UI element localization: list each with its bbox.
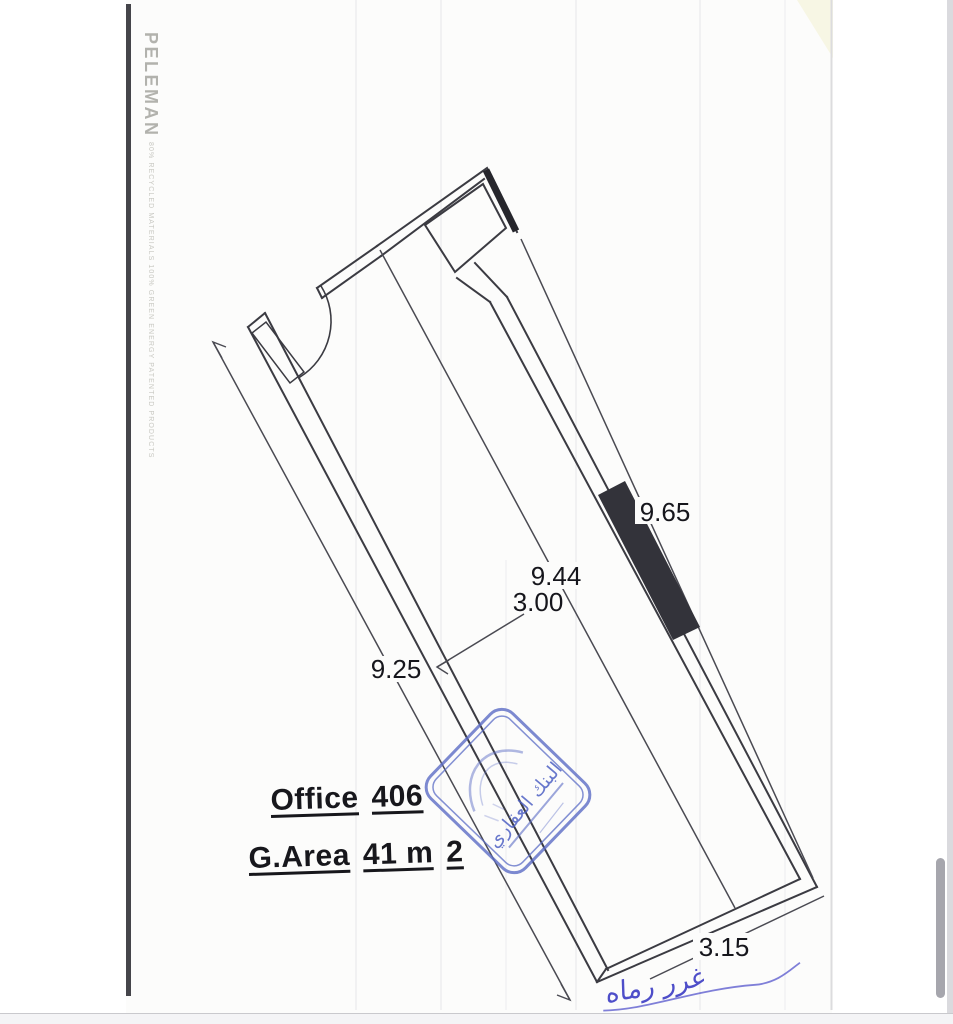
dim-label-right-wall: 9.65 bbox=[640, 497, 691, 527]
dim-label-left-wall: 9.25 bbox=[371, 654, 422, 684]
gross-area-label: G.Area41 m2 bbox=[248, 835, 464, 876]
paper-sheet bbox=[126, 0, 832, 1013]
scrollbar-thumb[interactable] bbox=[936, 858, 945, 998]
scanned-floorplan-viewer: 9.65 9.44 3.00 9.25 3.15 البنك العقاري غ… bbox=[0, 0, 953, 1024]
office-title-word: Office bbox=[270, 781, 359, 817]
area-value: 41 m bbox=[362, 836, 433, 871]
office-title: Office406 bbox=[270, 779, 424, 818]
dim-label-bottom: 3.15 bbox=[699, 932, 750, 962]
area-word: G.Area bbox=[248, 839, 350, 875]
dim-label-width: 3.00 bbox=[513, 587, 564, 617]
area-unit-exponent: 2 bbox=[446, 835, 464, 869]
binding-tagline-text: 80% RECYCLED MATERIALS 100% GREEN ENERGY… bbox=[147, 142, 154, 459]
viewer-right-edge-strip bbox=[947, 0, 953, 1024]
office-number: 406 bbox=[371, 779, 424, 814]
floorplan-scan-svg: 9.65 9.44 3.00 9.25 3.15 البنك العقاري غ… bbox=[0, 0, 953, 1024]
binding-spine-shadow bbox=[126, 4, 131, 996]
viewer-bottom-bar bbox=[0, 1013, 953, 1024]
binding-brand-text: PELEMAN bbox=[140, 32, 161, 138]
